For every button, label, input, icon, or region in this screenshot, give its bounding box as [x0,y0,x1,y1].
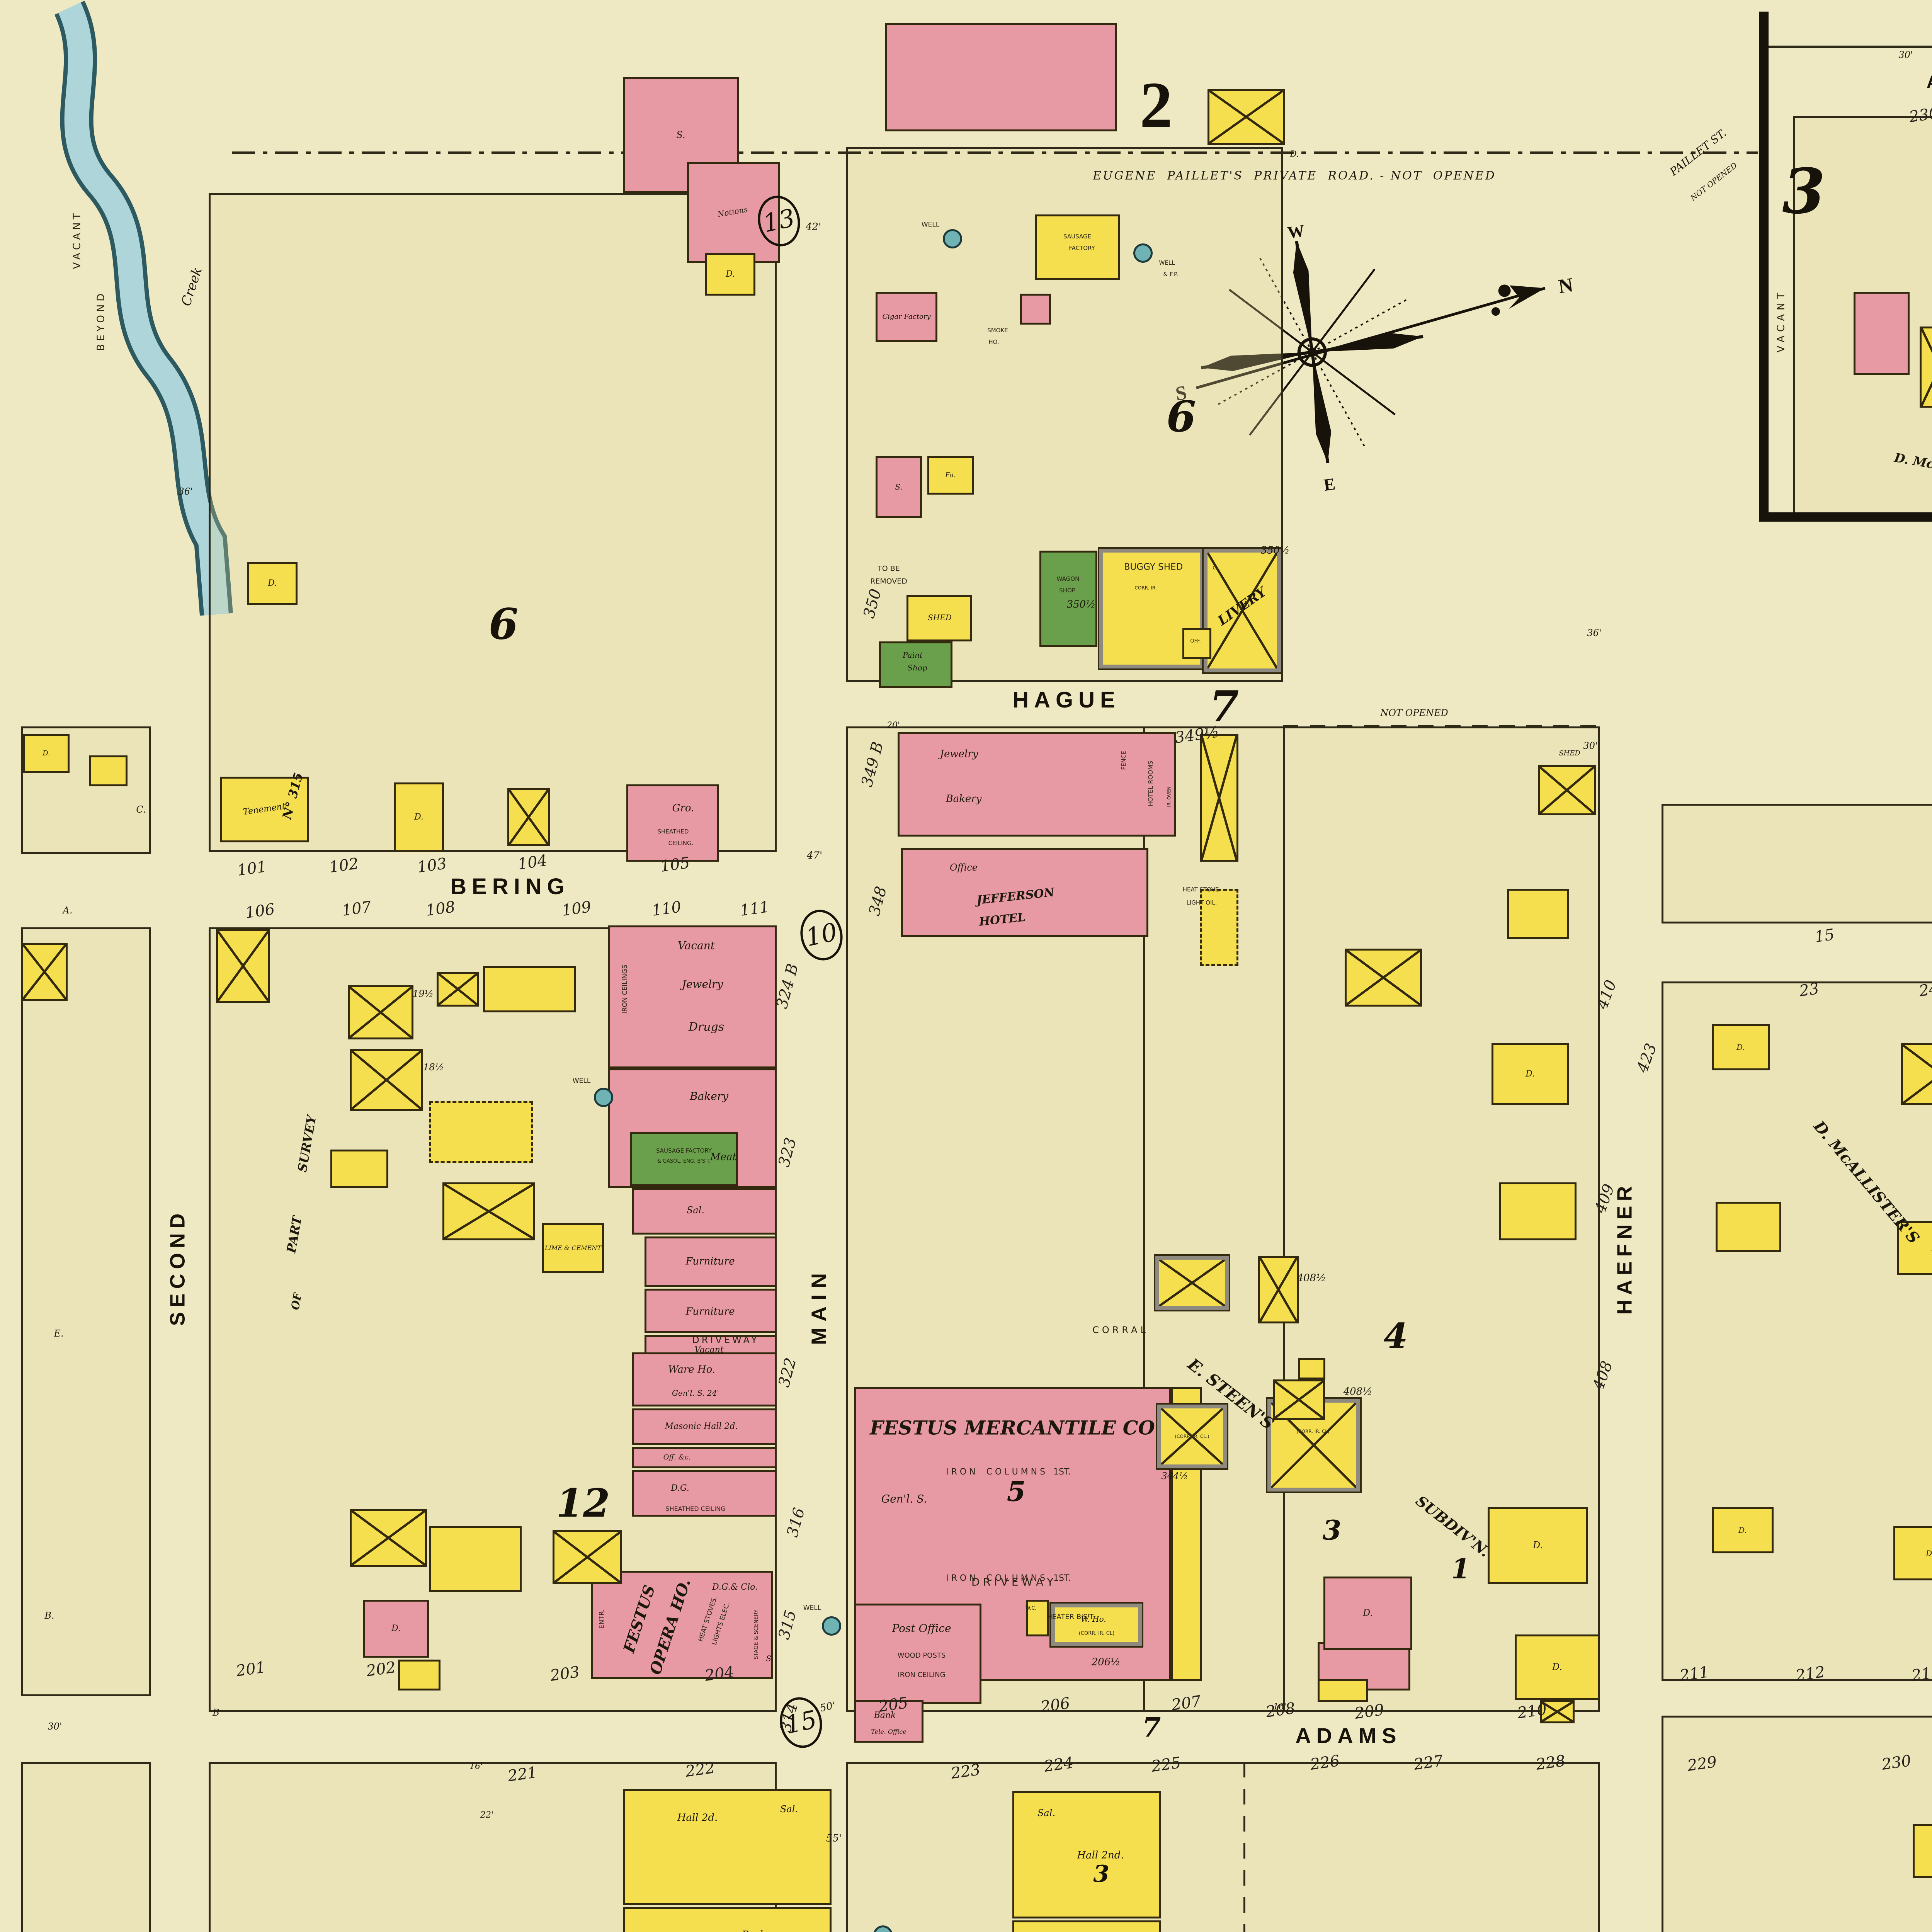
map-label: IRON CEILING [898,1671,945,1679]
map-label: Tele. Office [871,1728,906,1735]
map-label: 20' [887,721,900,730]
building [1507,889,1569,939]
map-label: FACTORY [1069,245,1095,252]
well-marker [594,1088,613,1107]
map-label: STAGE & SCENERY [753,1609,759,1659]
map-label: FENCE [1121,751,1127,770]
building-label: D. [726,270,735,279]
block-number: 7 [1209,682,1239,731]
map-label: HOTEL ROOMS [1147,761,1154,807]
map-label: MAIN [808,1267,830,1345]
map-label: SAUSAGE [1063,233,1091,240]
lot-number: 316 [784,1506,808,1539]
x-mark [23,945,66,999]
building: D. [705,253,755,296]
building: D. [1488,1507,1588,1584]
map-label: Drugs [689,1021,724,1034]
map-label: 408½ [1297,1273,1326,1284]
map-label: LIGHT OIL. [1187,900,1217,906]
building [1207,89,1285,145]
building [1200,734,1238,862]
lot-number: 211 [1679,1663,1710,1685]
lot-number: 322 [775,1356,800,1389]
building: D. [1323,1577,1412,1650]
map-label: Office [950,862,978,872]
building: D. [1712,1024,1770,1070]
map-label: 50' [819,1700,836,1714]
building [1854,292,1910,375]
map-label: Ware Ho. [668,1364,715,1376]
map-label: Bakery [690,1091,728,1103]
building [216,929,270,1003]
x-mark [509,790,548,844]
building [1258,1256,1299,1323]
map-label: CEILING. [668,840,694,847]
building [429,1526,522,1592]
lot-number: 315 [775,1608,800,1641]
building-label: LIME & CEMENT [545,1245,601,1252]
map-label: & F.P. [1163,271,1179,278]
well-marker [943,229,962,248]
lot-number: 213 [1910,1663,1932,1685]
map-label: WELL [573,1078,591,1085]
map-label: CORRAL [1092,1325,1149,1335]
building [483,966,576,1012]
map-label: SHEATHED [658,828,689,835]
building [350,1049,423,1111]
map-label: (CORR. IR. CL.) [1175,1434,1209,1439]
map-label: WELL [803,1605,821,1612]
building [1318,1679,1368,1702]
map-label: W. Ho. [1081,1615,1106,1623]
compass-n: N [1557,274,1575,298]
map-label: 16' [469,1762,483,1771]
block-number: 6 [489,599,519,649]
building-label: D. [43,750,50,757]
compass-e: E [1323,474,1337,495]
building [885,23,1117,131]
map-label: HAGUE [1012,688,1120,713]
lot-number: 110 [651,898,682,920]
building: D. [363,1600,429,1658]
lot-number: 104 [517,852,548,873]
lot-number: 111 [739,898,770,920]
building [623,1907,832,1932]
x-mark [1922,328,1932,406]
x-mark [444,1184,533,1238]
map-label: 19½ [413,989,434,999]
map-label: VACANT [72,210,83,269]
building [330,1150,388,1188]
building [1716,1202,1781,1252]
building [1155,1256,1229,1310]
building-label: D. [1738,1526,1747,1534]
map-label: D. [1290,150,1299,159]
map-label: SMOKE [987,327,1008,334]
map-label: SHEATHED CEILING [665,1505,725,1512]
x-mark [554,1532,620,1582]
map-label: Gen'l. S. 24' [672,1389,719,1397]
building [1920,327,1932,408]
compass-w: W [1286,221,1306,242]
x-mark [1159,1260,1225,1306]
map-label: 344½ [1161,1471,1188,1481]
map-label: I R O N C O L U M N S 1ST. [946,1574,1071,1583]
x-mark [1275,1381,1323,1418]
map-label: Barber [742,1930,777,1932]
map-label: Hall 2d. [677,1813,718,1824]
map-label: Paint [903,651,923,659]
map-label: Jewelry [682,979,723,991]
building [507,788,550,846]
map-label: SHED [928,613,952,622]
map-label: (CORR. IR. CL) [1296,1429,1329,1434]
map-label: Masonic Hall 2d. [665,1422,738,1431]
lot-number: 23 [1798,980,1820,1000]
map-label: HAEFNER [1613,1181,1636,1315]
map-label: BERING [450,874,570,899]
building-label: D. [1736,1043,1745,1051]
building [1273,1379,1325,1420]
map-label: SAUSAGE FACTORY [656,1148,712,1154]
building [623,1789,832,1905]
building [429,1101,533,1163]
map-label: 47' [807,850,822,862]
lot-number: 101 [236,858,268,879]
map-label: Shop [907,663,927,672]
map-label: Furniture [685,1306,735,1318]
building-label: D. [1533,1541,1543,1550]
lot-number: 102 [328,855,360,876]
lot-number: 103 [416,855,448,876]
map-label: Cigar Factory [882,313,930,321]
x-mark [1202,736,1236,860]
building [1345,949,1422,1007]
map-line [1283,725,1600,727]
map-label: BUGGY SHED [1124,562,1183,572]
map-label: Hall 2nd. [1077,1850,1124,1861]
block-outline [21,1762,151,1932]
map-label: Sal. [687,1205,704,1215]
x-mark [1903,1045,1932,1103]
lot-number: 108 [425,898,456,920]
building [89,755,128,786]
building [1901,1043,1932,1105]
map-label: & GASOL. ENG. B'S'T. [657,1159,711,1164]
well-marker [1133,243,1153,263]
block-number: 3 [1323,1514,1342,1546]
building-label: D. [1363,1608,1373,1618]
map-label: BEYOND [96,291,107,351]
building-label: S. [895,483,902,491]
lot-number: 206 [1039,1694,1071,1716]
map-label: E. [54,1328,63,1338]
map-line [232,151,1758,154]
map-label: Gen'l. S. [881,1493,927,1505]
map-label: 350½ [1067,599,1096,611]
map-label: 36' [178,486,192,497]
x-mark [350,987,412,1037]
circled-number: 15 [775,1693,827,1752]
map-label: W.C. [1026,1606,1037,1611]
map-label: ENTR. [599,1609,606,1629]
thick-boundary-line [1759,12,1769,522]
block-outline [1662,804,1932,923]
map-label: 18½ [423,1062,444,1072]
lot-number: 107 [341,898,372,920]
map-label: CORR. IR. [1135,585,1157,590]
building [437,972,479,1007]
building-label: D. [391,1624,401,1633]
block-number: 7 [1142,1711,1161,1743]
lot-number: 230 [1908,104,1932,126]
block-number: 4 [1384,1316,1408,1357]
lot-number: 208 [1265,1699,1296,1721]
map-label: Sal. [780,1804,798,1814]
building [21,943,68,1001]
building: D. [1492,1043,1569,1105]
map-label: ADAMS [1927,72,1932,92]
lot-number: 212 [1794,1663,1826,1685]
map-label: OFF. [1190,639,1201,644]
block-outline [21,927,151,1696]
map-label: DRIVEWAY [692,1335,759,1345]
block-outline [1662,1716,1932,1932]
map-label: A. [63,905,73,915]
circled-number: 10 [796,906,847,964]
map-label: HEAT STOVE. [1183,886,1221,893]
building: D. [1712,1507,1774,1553]
building: D. [247,562,298,605]
building [1020,294,1051,325]
map-label: Bakery [946,794,982,805]
building [1538,765,1596,815]
well-marker [822,1616,841,1636]
map-label: SHED [1559,750,1580,757]
building-label: Fa. [945,472,956,479]
lot-number: 324 B [773,962,802,1010]
map-label: EUGENE PAILLET'S PRIVATE ROAD. - NOT OPE… [1093,170,1496,182]
block-outline [846,1762,1600,1932]
sanborn-map-sheet: N S W E Aug. 1908 FESTUS MO. 3 Map Divis… [0,0,1932,1932]
x-mark [218,931,268,1001]
map-label: WELL [922,221,940,229]
map-label: 36' [1587,628,1601,638]
map-label: NOT OPENED [1380,708,1448,718]
building [1051,1604,1142,1646]
thick-boundary-line [1759,512,1932,522]
map-label: Vacant [678,940,715,952]
building-label: D. [268,579,277,588]
map-label: Meat [710,1152,736,1163]
building-label: D. [1926,1549,1932,1558]
map-label: D.G. [671,1484,689,1493]
building-label: D. [414,813,423,821]
map-label: 30' [48,1721,62,1731]
building [626,784,719,862]
building: Rest'r't. [1012,1920,1161,1932]
map-label: Gro. [672,803,694,814]
building [1298,1358,1325,1379]
block-number: 3 [1093,1861,1109,1888]
map-label: TO BE [878,565,900,573]
x-mark [1209,91,1283,143]
building [632,1447,777,1468]
x-mark [352,1511,425,1565]
map-label: REMOVED [870,578,907,586]
block-number: 12 [556,1480,610,1526]
map-label: Off. &c. [663,1454,691,1461]
building [442,1182,535,1240]
map-label: Furniture [685,1256,735,1267]
map-label: Sal. [1037,1808,1055,1818]
map-label: 206½ [1092,1657,1121,1668]
map-label: Jewelry [940,749,978,760]
building: D. [1893,1526,1932,1580]
map-label: C. [136,804,146,815]
map-label: WOOD POSTS [898,1652,946,1660]
map-label: B. [44,1611,54,1621]
building [398,1660,440,1690]
lot-number: 209 [1354,1701,1385,1723]
building: D. [394,782,444,852]
map-label: SHOP [1059,587,1075,594]
map-label: 350½ [1261,545,1290,556]
map-label: IR. OVEN [1167,786,1172,807]
lot-number: 109 [561,898,592,920]
lot-number: 423 [1633,1041,1660,1075]
map-label: WAGON [1057,576,1080,582]
lot-number: 106 [244,900,276,922]
lot-number: 323 [775,1136,800,1169]
block-number: 3 [1782,155,1825,228]
lot-number: 16 [1930,926,1932,946]
map-line [1759,46,1932,48]
building [1499,1182,1577,1240]
building: D. [1913,1824,1932,1878]
block-number: 2 [1140,68,1173,143]
map-label: 42' [806,222,821,233]
building [350,1509,427,1567]
building: D. [1515,1634,1600,1700]
x-mark [352,1051,421,1109]
map-line [1283,726,1285,1712]
map-label: CL. [1213,565,1220,570]
block-outline [209,193,777,852]
map-label: IRON CEILINGS [622,964,629,1014]
building-label: S. [676,130,685,140]
building [348,985,413,1039]
block-outline [1662,981,1932,1681]
lot-number: 24 [1918,980,1932,1000]
map-label: B [213,1708,219,1718]
building: S. [876,456,922,518]
x-mark [439,974,477,1005]
x-mark [1260,1258,1297,1321]
map-label: NOT OPENED [1689,161,1739,202]
block-number: 5 [1007,1476,1026,1508]
map-label: 22' [480,1811,493,1820]
map-line [1243,1762,1245,1932]
x-mark [1347,951,1420,1005]
building: D. [23,734,70,773]
map-label: SECOND [166,1209,189,1326]
map-label: HO. [988,339,999,345]
map-label: 30' [1898,50,1913,60]
building [632,1352,777,1406]
building-label: D. [1526,1070,1535,1078]
block-number: 6 [1167,392,1196,442]
map-label: 408½ [1344,1386,1372,1398]
building [553,1530,622,1584]
map-label: D.G.& Clo. [712,1583,758,1592]
map-label: S. [766,1654,773,1663]
map-label: Post Office [892,1623,951,1635]
map-label: WELL [1159,260,1175,266]
x-mark [1540,767,1594,813]
map-label: Vacant [694,1345,723,1355]
map-label: FESTUS MERCANTILE CO [870,1417,1155,1439]
building: LIME & CEMENT [542,1223,604,1273]
building: Fa. [927,456,974,495]
building-label: D. [1552,1662,1562,1672]
building [898,732,1176,837]
map-label: 30' [1583,741,1597,751]
lot-number: 15 [1814,926,1836,946]
map-label: (CORR. IR. CL) [1079,1631,1114,1636]
lot-number: 105 [659,854,691,876]
map-label: 55' [826,1833,842,1844]
block-number: 1 [1451,1553,1470,1585]
map-label: ADAMS [1295,1724,1401,1748]
map-label: VACANT [1776,289,1787,353]
